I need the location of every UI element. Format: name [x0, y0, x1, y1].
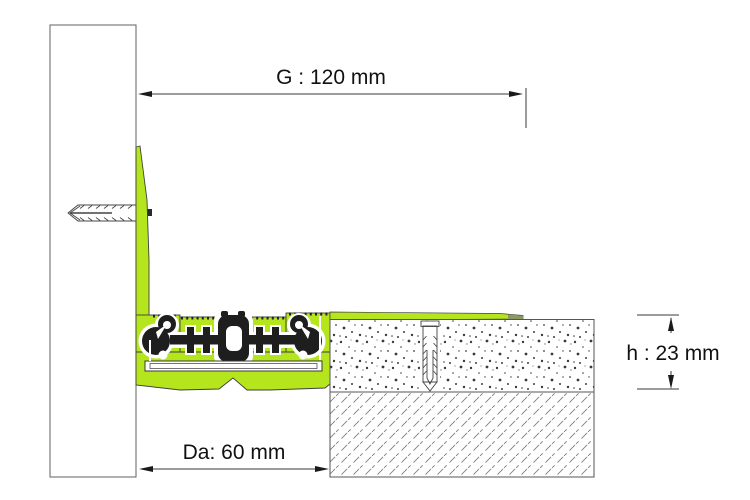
arrowhead-right-icon — [509, 91, 523, 97]
substrate-layer — [330, 392, 594, 477]
dimension-g-label: G : 120 mm — [276, 66, 386, 89]
technical-drawing-canvas: G : 120 mm h : 23 mm Da: 60 mm — [0, 0, 750, 500]
wall-section — [50, 25, 136, 477]
profile-top-flange — [330, 312, 523, 320]
wall-hatch-body — [50, 25, 136, 477]
base-groove-slot — [145, 361, 322, 371]
floor-anchor-plug — [420, 321, 440, 391]
profile-vertical-leg — [136, 146, 149, 316]
dimension-g: G : 120 mm — [138, 66, 526, 128]
center-loop-hole — [226, 326, 242, 351]
arrowhead-left-icon — [138, 91, 152, 97]
arrowhead-right-icon — [315, 466, 329, 472]
dimension-h: h : 23 mm — [626, 315, 719, 389]
arrowhead-left-icon — [139, 466, 153, 472]
concrete-slab — [330, 320, 594, 393]
arrowhead-up-icon — [668, 317, 674, 331]
dimension-da-label: Da: 60 mm — [183, 441, 286, 464]
dimension-da: Da: 60 mm — [139, 441, 329, 472]
arrowhead-down-icon — [668, 375, 674, 389]
dimension-h-label: h : 23 mm — [626, 342, 719, 365]
expansion-joint-cross-section: G : 120 mm h : 23 mm Da: 60 mm — [0, 0, 750, 500]
